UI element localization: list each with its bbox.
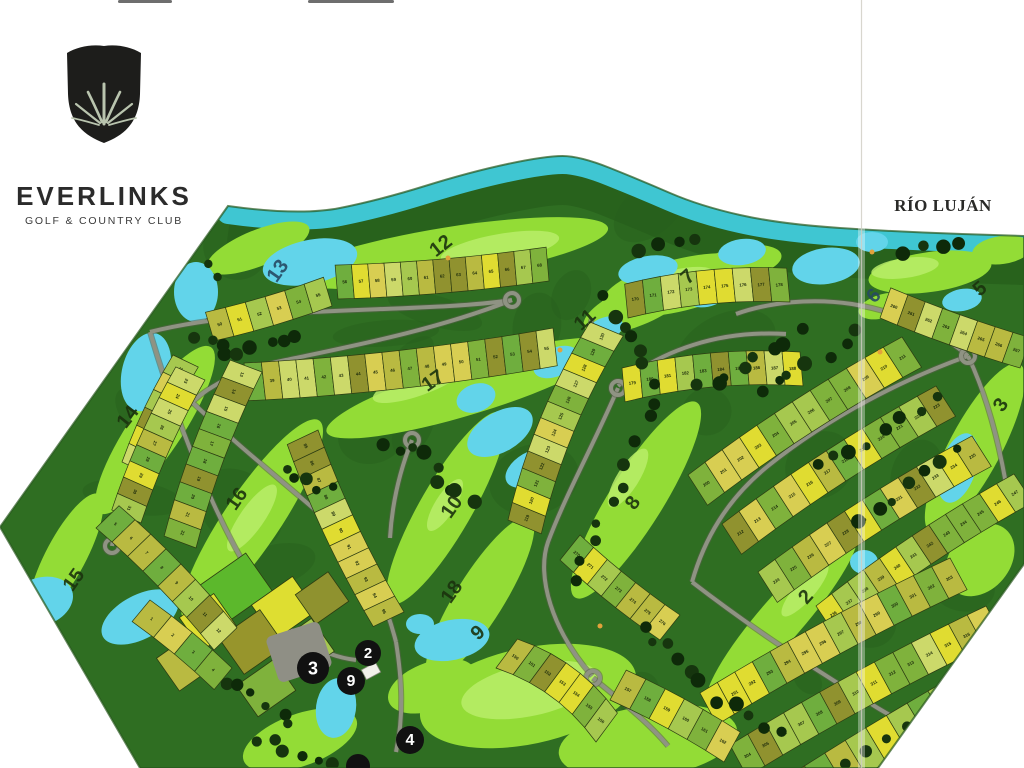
tree (609, 497, 619, 507)
lot-tree (964, 685, 975, 696)
tree (744, 711, 754, 721)
tree (797, 356, 812, 371)
lot-number: 172 (667, 289, 675, 295)
tree (289, 473, 299, 483)
tree (213, 273, 221, 281)
tree (775, 337, 790, 352)
sand-speck (558, 348, 563, 353)
tree (377, 438, 390, 451)
sand-speck (446, 256, 451, 261)
tree (797, 323, 809, 335)
tree (880, 423, 893, 436)
lot-number: 181 (664, 373, 672, 379)
tree (280, 709, 292, 721)
tree (230, 348, 243, 361)
tree (936, 239, 950, 253)
tree (268, 337, 278, 347)
tree (468, 495, 482, 509)
tree (574, 556, 584, 566)
lot-number: 171 (649, 292, 657, 298)
hole-marker-9: 9 (337, 667, 365, 695)
tree (933, 392, 943, 402)
tree (261, 702, 269, 710)
hole-marker-4: 4 (396, 726, 424, 754)
tree (635, 357, 648, 370)
scan-artifact (308, 0, 394, 3)
tree (208, 335, 218, 345)
tree (396, 447, 405, 456)
lot-number: 183 (699, 368, 707, 374)
tree (312, 486, 321, 495)
tree (953, 445, 961, 453)
marker-number: 4 (406, 732, 415, 749)
river-label: RÍO LUJÁN (878, 196, 1008, 216)
tree (903, 477, 916, 490)
tree (288, 330, 301, 343)
lot-tree (985, 673, 996, 684)
tree (729, 697, 744, 712)
tree (590, 535, 601, 546)
lot (949, 667, 990, 713)
tree (188, 332, 200, 344)
club-name: EVERLINKS (14, 181, 194, 212)
tree (634, 344, 647, 357)
tree (896, 246, 911, 261)
tree (629, 435, 641, 447)
tree (952, 237, 965, 250)
tree (663, 638, 674, 649)
lot-number: 174 (703, 284, 711, 290)
tree (640, 621, 651, 632)
lot-tree (923, 709, 933, 719)
tree (918, 240, 929, 251)
lot-number: 184 (717, 366, 725, 372)
tree (917, 407, 926, 416)
tree (283, 719, 292, 728)
tree (648, 398, 660, 410)
lot (991, 644, 1024, 690)
tree (617, 458, 630, 471)
lot-number: 176 (739, 282, 747, 288)
tree (283, 465, 292, 474)
tree (608, 310, 623, 325)
tree (671, 653, 684, 666)
tree (651, 237, 665, 251)
lot-tree (1006, 662, 1017, 673)
tree (434, 463, 444, 473)
sand-speck (878, 350, 883, 355)
hole-marker-3: 3 (297, 652, 329, 684)
tree (631, 244, 645, 258)
marker-number: 2 (364, 645, 372, 662)
tree (217, 347, 231, 361)
lot-number: 187 (771, 365, 779, 371)
tree (919, 465, 931, 477)
fairway (88, 236, 173, 287)
tree (776, 727, 786, 737)
lake (406, 614, 434, 634)
tree (842, 339, 853, 350)
tree (781, 371, 790, 380)
tree (813, 459, 824, 470)
tree (300, 472, 313, 485)
tree (710, 696, 723, 709)
tree (231, 679, 243, 691)
lot-number: 179 (629, 380, 637, 386)
tree (691, 379, 703, 391)
tree (739, 362, 751, 374)
lot-tree (882, 734, 891, 743)
tree (297, 751, 307, 761)
tree (329, 483, 337, 491)
tree (674, 237, 684, 247)
lot-number: 175 (721, 283, 729, 289)
tree (597, 290, 608, 301)
tree (893, 411, 906, 424)
lot-number: 178 (775, 282, 783, 288)
tree (625, 330, 637, 342)
tree (571, 575, 582, 586)
tree (873, 502, 887, 516)
tree (841, 445, 856, 460)
tree (645, 410, 657, 422)
tree (408, 443, 417, 452)
lot-number: 177 (757, 282, 765, 288)
tree (691, 673, 706, 688)
marker-number: 9 (347, 673, 356, 690)
lot-tree (943, 697, 953, 707)
sand-speck (598, 624, 603, 629)
hole-marker-2: 2 (355, 640, 381, 666)
lot-number: 186 (753, 365, 761, 371)
lot (970, 656, 1012, 702)
tree (747, 352, 758, 363)
tree (252, 736, 262, 746)
marker-number: 3 (308, 659, 318, 679)
lot-number: 170 (631, 296, 639, 302)
club-subtitle: GOLF & COUNTRY CLUB (14, 215, 194, 227)
tree (649, 379, 660, 390)
tree (689, 234, 700, 245)
tree (888, 498, 896, 506)
tree (592, 519, 601, 528)
lot-number: 188 (789, 366, 797, 372)
tree (719, 373, 728, 382)
tree (276, 745, 289, 758)
scanned-masterplan-page: 5657585960616263646566676838394041424344… (0, 0, 1024, 768)
sand-speck (870, 250, 875, 255)
tree (757, 386, 769, 398)
tree (618, 483, 629, 494)
lot-number: 182 (681, 370, 689, 376)
scan-artifact (118, 0, 172, 3)
tree (416, 445, 431, 460)
tree (758, 722, 770, 734)
tree (269, 734, 280, 745)
tree (315, 757, 323, 765)
tree (828, 450, 838, 460)
tree (933, 455, 947, 469)
agave-shield-icon (14, 42, 194, 162)
tree (242, 340, 256, 354)
tree (246, 688, 254, 696)
tree (648, 638, 656, 646)
tree (204, 260, 212, 268)
tree (826, 352, 837, 363)
logo-block: EVERLINKS GOLF & COUNTRY CLUB (14, 42, 194, 227)
tree (430, 475, 444, 489)
